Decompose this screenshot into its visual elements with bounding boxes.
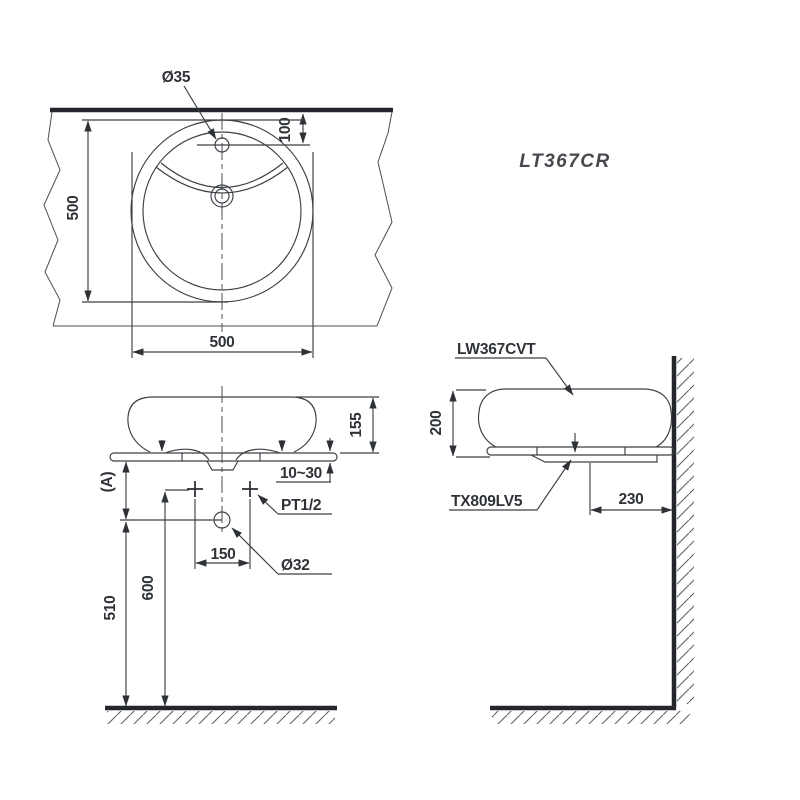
drain-dia-leader bbox=[232, 528, 278, 574]
technical-drawing-page: Ø35 100 500 500 LT367CR bbox=[0, 0, 800, 800]
drain-dia-label: Ø32 bbox=[281, 557, 310, 574]
dim-500-width-label: 500 bbox=[210, 334, 235, 351]
drain-model-label: TX809LV5 bbox=[451, 493, 523, 510]
dim-510-label: 510 bbox=[102, 596, 119, 621]
floor-hatching-side bbox=[492, 711, 690, 724]
basin-foot-right bbox=[236, 449, 280, 460]
dim-100-label: 100 bbox=[277, 118, 294, 143]
dim-200-label: 200 bbox=[428, 411, 445, 436]
counter-break-line-right bbox=[375, 112, 392, 326]
faucet-hole-dia-label: Ø35 bbox=[162, 69, 191, 86]
dim-600-label: 600 bbox=[140, 576, 157, 601]
drain-model-leader bbox=[537, 460, 571, 510]
supply-thread-label: PT1/2 bbox=[281, 497, 321, 514]
dim-230-label: 230 bbox=[619, 491, 644, 508]
wall-hatching bbox=[677, 358, 694, 704]
dim-155-label: 155 bbox=[348, 412, 365, 438]
counter-strip-front bbox=[110, 453, 337, 461]
front-view: 155 10~30 PT1/2 150 Ø32 bbox=[99, 386, 379, 724]
supply-point-left bbox=[187, 481, 203, 497]
basin-foot-left bbox=[165, 449, 209, 460]
drawing-canvas: Ø35 100 500 500 LT367CR bbox=[0, 0, 800, 800]
floor-hatching-front bbox=[107, 711, 335, 724]
dim-150-label: 150 bbox=[211, 546, 236, 563]
basin-model-label: LW367CVT bbox=[457, 341, 536, 358]
counter-break-line-left bbox=[44, 112, 60, 326]
supply-thread-leader bbox=[258, 495, 278, 514]
dim-500-depth-label: 500 bbox=[65, 196, 82, 221]
top-view: Ø35 100 500 500 bbox=[44, 69, 393, 358]
counter-strip-side bbox=[487, 447, 674, 455]
supply-point-right bbox=[242, 481, 258, 497]
dim-a-label: (A) bbox=[99, 472, 116, 493]
dim-counter-thickness-label: 10~30 bbox=[280, 465, 322, 482]
under-counter-bracket bbox=[531, 455, 657, 462]
product-code: LT367CR bbox=[519, 151, 610, 172]
side-view: LW367CVT 200 TX809LV5 230 bbox=[428, 341, 694, 724]
faucet-hole-leader-line bbox=[184, 86, 216, 139]
